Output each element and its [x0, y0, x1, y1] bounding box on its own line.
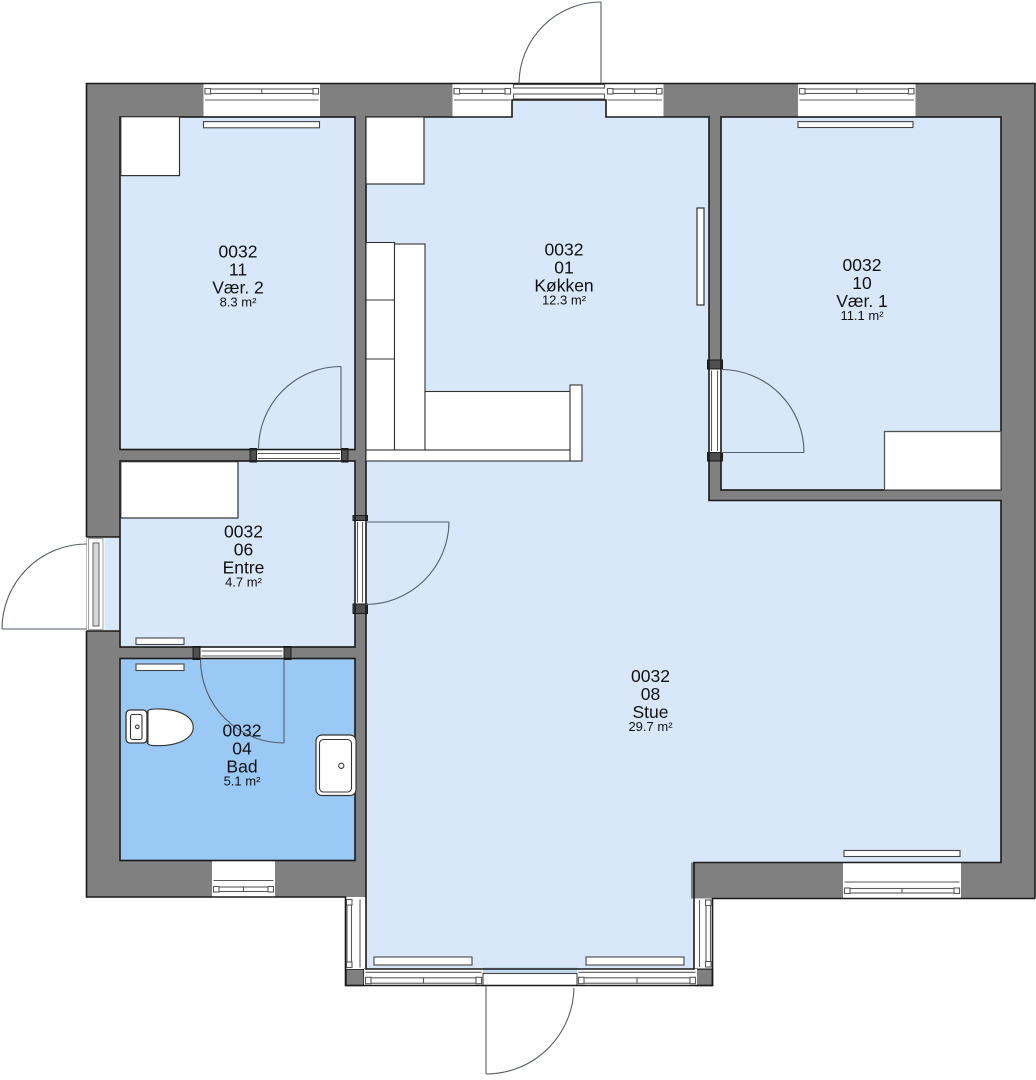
svg-text:11: 11: [229, 260, 247, 280]
svg-text:0032: 0032: [224, 522, 263, 542]
svg-text:08: 08: [641, 684, 660, 704]
svg-text:11.1 m²: 11.1 m²: [840, 308, 884, 323]
svg-text:0032: 0032: [223, 721, 262, 741]
svg-text:0032: 0032: [843, 255, 882, 275]
svg-text:0032: 0032: [545, 240, 584, 260]
svg-text:8.3 m²: 8.3 m²: [220, 294, 258, 309]
svg-text:01: 01: [554, 258, 573, 278]
svg-text:5.1 m²: 5.1 m²: [224, 773, 262, 788]
svg-text:06: 06: [234, 540, 253, 560]
svg-text:04: 04: [232, 739, 252, 759]
svg-text:0032: 0032: [219, 242, 258, 262]
svg-text:12.3 m²: 12.3 m²: [542, 292, 587, 307]
svg-text:10: 10: [852, 273, 872, 293]
svg-text:4.7 m²: 4.7 m²: [225, 574, 263, 589]
svg-text:29.7 m²: 29.7 m²: [628, 719, 673, 734]
svg-text:0032: 0032: [631, 666, 670, 686]
